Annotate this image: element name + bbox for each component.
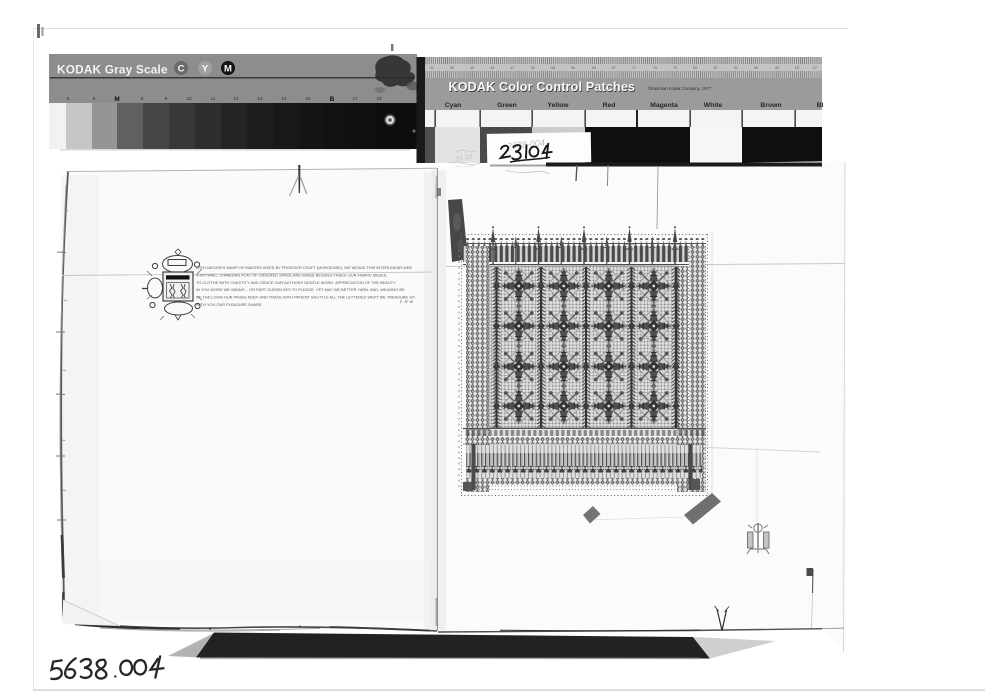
svg-text:63: 63 — [592, 66, 596, 70]
svg-text:8: 8 — [141, 96, 144, 101]
svg-text:IN YOU WORK WE WEAVE, - OR PAR: IN YOU WORK WE WEAVE, - OR PART OURSELVE… — [196, 287, 405, 292]
svg-text:Red: Red — [603, 102, 616, 109]
svg-text:©Eastman Kodak Company, 1977: ©Eastman Kodak Company, 1977 — [648, 86, 712, 91]
svg-text:M: M — [224, 64, 232, 75]
svg-text:11: 11 — [211, 96, 216, 101]
svg-text:F. JF W: F. JF W — [400, 299, 414, 304]
svg-text:55: 55 — [551, 66, 555, 70]
svg-text:OF THE LOOM OUR PAGES KEEP, AN: OF THE LOOM OUR PAGES KEEP, AND TRACE WI… — [196, 295, 415, 300]
svg-text:39: 39 — [470, 66, 474, 70]
svg-text:59: 59 — [571, 66, 575, 70]
svg-text:03: 03 — [795, 66, 799, 70]
svg-text:WITH NATURES WARP OF MAKERS WE: WITH NATURES WARP OF MAKERS WEED BY FRON… — [196, 265, 412, 270]
svg-text:Bl: Bl — [817, 102, 824, 109]
svg-text:White: White — [704, 102, 723, 109]
svg-text:43: 43 — [490, 66, 494, 70]
svg-text:67: 67 — [612, 66, 616, 70]
svg-text:KODAK Color Control Patches: KODAK Color Control Patches — [449, 80, 636, 94]
svg-text:15: 15 — [305, 96, 311, 101]
svg-text:Yellow: Yellow — [547, 102, 569, 109]
svg-text:99: 99 — [775, 66, 779, 70]
svg-text:KODAK Gray Scale: KODAK Gray Scale — [57, 63, 168, 77]
svg-text:13: 13 — [257, 96, 263, 101]
svg-text:12: 12 — [233, 96, 239, 101]
svg-text:79: 79 — [673, 66, 677, 70]
svg-text:35: 35 — [450, 66, 454, 70]
svg-text:WITH YOU OUR PLEASURE SHARE.: WITH YOU OUR PLEASURE SHARE. — [196, 302, 263, 307]
svg-text:TO CLOTHE WITH CHASTITY AND GR: TO CLOTHE WITH CHASTITY AND GRACE OUR AU… — [196, 280, 396, 285]
svg-text:A MYTHRIC, CHANGING PLAY OF OR: A MYTHRIC, CHANGING PLAY OF ORDERED SPAC… — [196, 272, 387, 277]
svg-text:91: 91 — [734, 66, 738, 70]
svg-text:M: M — [114, 96, 119, 103]
svg-text:18: 18 — [376, 96, 382, 101]
svg-text:Cyan: Cyan — [445, 102, 462, 109]
svg-text:C: C — [178, 64, 185, 75]
svg-text:Brown: Brown — [760, 102, 781, 109]
svg-text:87: 87 — [714, 66, 718, 70]
svg-text:5: 5 — [67, 96, 70, 101]
svg-text:71: 71 — [632, 66, 636, 70]
svg-text:Magenta: Magenta — [650, 102, 678, 109]
svg-text:6: 6 — [93, 96, 96, 101]
svg-text:Y: Y — [202, 64, 209, 75]
svg-text:B: B — [330, 96, 335, 103]
svg-text:51: 51 — [531, 66, 535, 70]
svg-text:10: 10 — [186, 96, 192, 101]
svg-text:07: 07 — [813, 66, 817, 70]
svg-text:75: 75 — [653, 66, 657, 70]
svg-text:47: 47 — [510, 66, 514, 70]
svg-text:Green: Green — [497, 102, 517, 109]
svg-text:17: 17 — [352, 96, 358, 101]
svg-text:9: 9 — [165, 96, 168, 101]
svg-text:83: 83 — [693, 66, 697, 70]
svg-text:14: 14 — [281, 96, 287, 101]
svg-text:31: 31 — [430, 66, 434, 70]
svg-text:95: 95 — [754, 66, 758, 70]
